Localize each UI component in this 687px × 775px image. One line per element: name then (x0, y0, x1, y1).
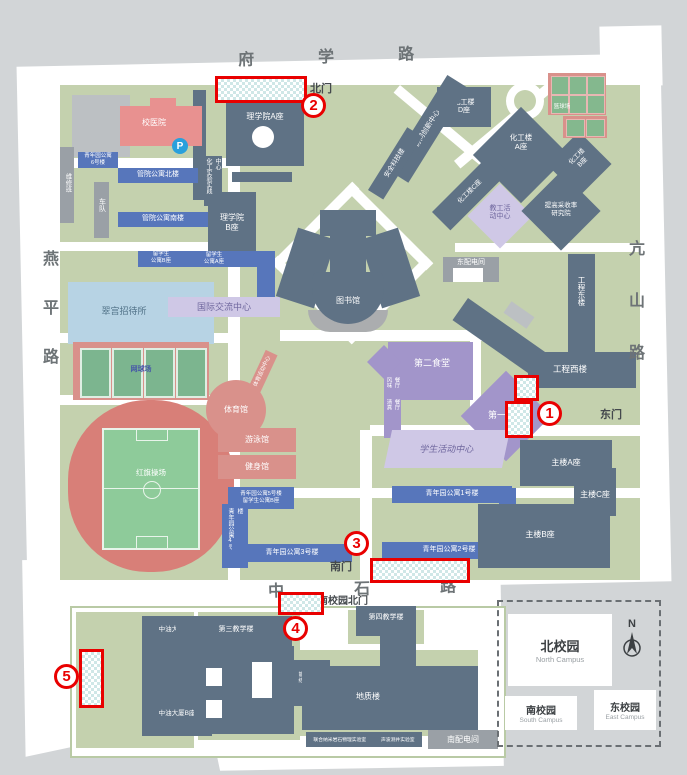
building-yq1: 青年园公寓1号楼 (392, 486, 512, 503)
goal-box (136, 428, 168, 441)
inset-east-en: East Campus (605, 714, 644, 721)
marker-5-label: 5 (62, 668, 70, 685)
motorpool-label: 车队 (97, 198, 107, 212)
basketball-cell (586, 119, 605, 137)
building (232, 172, 292, 182)
road-west-label: 燕平路 (36, 250, 60, 397)
main-a-label: 主楼A座 (540, 458, 592, 468)
campus-map: 校医院 P 理学院A座 理学院 B座 化工实验实践中心 管院公寓北楼 管院公寓南… (0, 0, 687, 775)
teach3-label: 第三教学楼 (206, 626, 266, 634)
building-intl-center: 国际交流中心 (168, 297, 280, 317)
marker-2: 2 (301, 93, 326, 118)
gate-south-label: 南门 (330, 558, 352, 574)
inset-east-campus: 东校园 East Campus (594, 690, 656, 730)
swim-label: 游泳馆 (245, 435, 269, 445)
canteen2-label: 第二食堂 (404, 358, 460, 369)
south-power-label: 南配电间 (447, 735, 479, 745)
building-student-center: 学生活动中心 (384, 430, 510, 468)
gate-south-campus-north-label: 南校园北门 (318, 592, 368, 607)
yq5-label: 青年园公寓5号楼 留学生公寓B座 (240, 491, 282, 504)
track-label: 红旗操场 (118, 468, 184, 477)
intl-center-label: 国际交流中心 (197, 302, 251, 313)
building-library (320, 210, 376, 236)
chem-a-label: 化工楼 A座 (496, 133, 546, 151)
restaurant2-label: 清真餐厅 (385, 399, 401, 415)
building-fitness: 健身馆 (218, 455, 296, 479)
hospital-label: 校医院 (126, 118, 182, 128)
mgmt-apt-south-label: 管院公寓南楼 (142, 215, 184, 223)
faculty-center-label: 教工活 动中心 (470, 205, 530, 222)
parking-label: P (177, 141, 184, 152)
intl-apt-a-label: 留学生 公寓A座 (192, 252, 236, 265)
sonic-lab-label: 声波测井实验室 (381, 736, 415, 743)
eor-label: 提高采收率 研究院 (528, 202, 594, 218)
inset-south-zh: 南校园 (526, 702, 556, 717)
building-south-power: 南配电间 (428, 730, 498, 749)
highlight-3 (370, 558, 470, 583)
teach3-notch (206, 668, 222, 686)
inset-south-campus: 南校园 South Campus (505, 696, 577, 730)
basketball-cell (551, 76, 569, 95)
tennis-label: 网球场 (116, 366, 166, 374)
building-restaurants: 风味餐厅 清真餐厅 (384, 374, 401, 438)
marker-3: 3 (344, 531, 369, 556)
parking-icon: P (172, 138, 188, 154)
basketball-cell (569, 76, 587, 95)
building-chem-practice: 化工实验实践中心 (204, 156, 222, 206)
path (280, 330, 500, 341)
inset-north-en: North Campus (536, 655, 584, 664)
main-b-label: 主楼B座 (514, 530, 566, 540)
map-ne-stub (599, 25, 662, 86)
chem-practice-label: 化工实验实践中心 (204, 158, 222, 194)
highlight-5 (79, 649, 104, 708)
inset-east-zh: 东校园 (610, 699, 640, 714)
building-repair: 维修班 (60, 147, 74, 223)
main-c-label: 主楼C座 (570, 490, 620, 500)
pitch-circle (143, 481, 161, 499)
tennis-court (80, 348, 111, 398)
goal-box (136, 536, 168, 549)
teach3-notch (206, 700, 222, 718)
inset-south-en: South Campus (520, 717, 563, 724)
teach3-notch (252, 662, 272, 698)
building-mgmt-apt-south: 管院公寓南楼 (118, 212, 208, 227)
building-hospital (150, 98, 176, 110)
eng-east-label: 工程东楼 (576, 276, 587, 306)
eng-west-label: 工程西楼 (534, 364, 606, 374)
marker-1: 1 (537, 401, 562, 426)
teach4-label: 第四教学楼 (358, 614, 414, 622)
marker-1-label: 1 (545, 405, 553, 422)
geology-label: 地质楼 (344, 692, 392, 702)
mgmt-apt-north-label: 管院公寓北楼 (137, 171, 179, 179)
yq2-label: 青年园公寓2号楼 (423, 546, 476, 554)
yq3-label: 青年园公寓3号楼 (266, 549, 319, 557)
marker-3-label: 3 (352, 535, 360, 552)
labs-bar: 联合纳米岩石物理实验室 声波测井实验室 (306, 732, 422, 747)
fitness-label: 健身馆 (245, 462, 269, 472)
repair-label: 维修班 (62, 173, 72, 193)
basketball-cell (587, 76, 605, 95)
gym-label: 体育馆 (224, 405, 248, 415)
guesthouse-label: 翠宫招待所 (82, 306, 166, 317)
tennis-court (176, 348, 207, 398)
compass-icon (618, 630, 646, 667)
building-mgmt-apt-north: 管院公寓北楼 (118, 168, 198, 183)
gate-east-label: 东门 (600, 406, 622, 422)
library-label: 图书馆 (330, 296, 366, 306)
inset-north-zh: 北校园 (540, 636, 579, 655)
yq1-label: 青年园公寓1号楼 (426, 490, 479, 498)
highlight-1b (505, 401, 533, 438)
science-b-label: 理学院 B座 (220, 213, 244, 232)
intl-apt-b-label: 留学生 公寓B座 (140, 251, 182, 264)
building-swim: 游泳馆 (218, 428, 296, 452)
road-east-label: 亢山路 (622, 240, 646, 396)
marker-4-label: 4 (291, 620, 299, 637)
student-center-label: 学生活动中心 (419, 444, 475, 455)
building-eng-east: 工程东楼 (568, 254, 595, 352)
marker-2-label: 2 (309, 97, 317, 114)
highlight-2 (215, 76, 307, 103)
building-teach3-body (194, 646, 294, 734)
restaurant1-label: 风味餐厅 (385, 377, 401, 393)
building-motorpool: 车队 (94, 182, 109, 238)
path (455, 243, 640, 252)
highlight-1a (514, 375, 539, 401)
basketball-cell (566, 119, 585, 137)
east-power-label: 东配电间 (445, 259, 497, 267)
marker-4: 4 (283, 616, 308, 641)
highlight-4 (278, 592, 324, 615)
courtyard (252, 126, 274, 148)
marker-5: 5 (54, 664, 79, 689)
basketball-label: 篮球场 (547, 104, 577, 111)
science-a-label: 理学院A座 (232, 112, 298, 122)
basketball-cell (587, 95, 605, 114)
inset-north-campus: 北校园 North Campus (508, 614, 612, 686)
east-power-notch (453, 268, 483, 282)
nano-lab-label: 联合纳米岩石物理实验室 (313, 736, 366, 743)
building-yq6: 青年园公寓 6号楼 (78, 152, 118, 168)
yq6-label: 青年园公寓 6号楼 (84, 153, 112, 166)
